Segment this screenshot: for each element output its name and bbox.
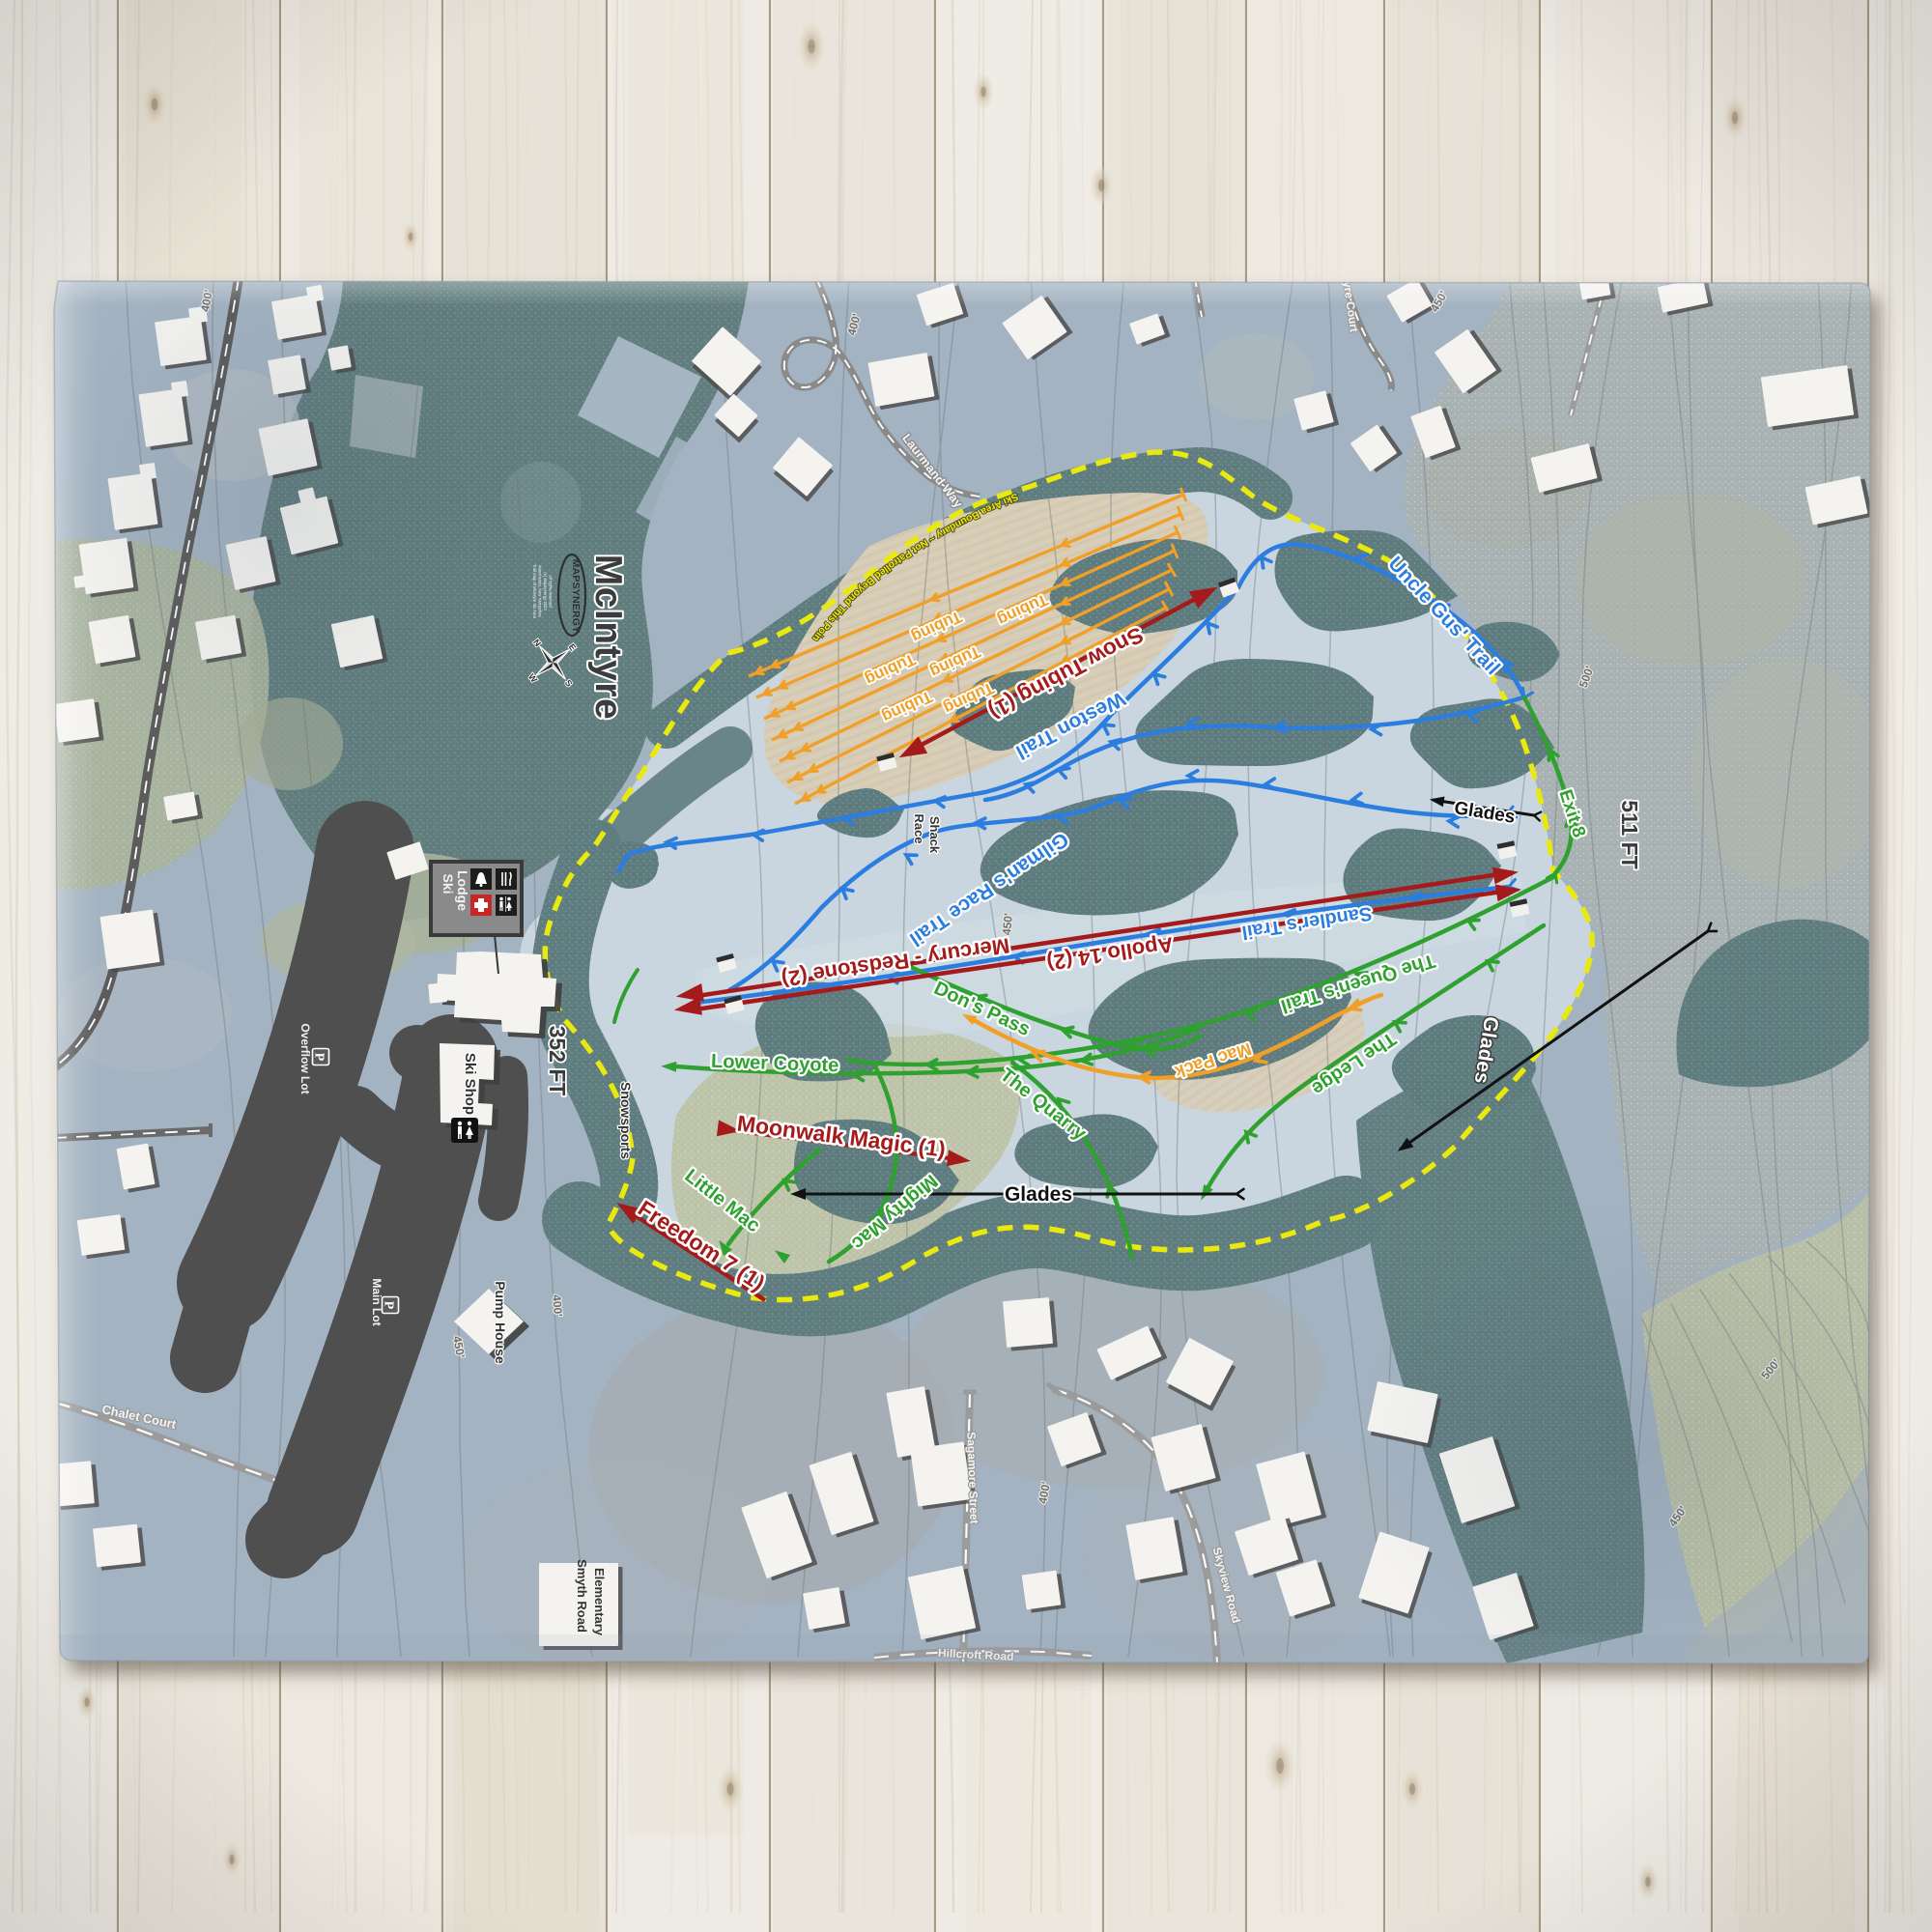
svg-text:Shack: Shack bbox=[927, 816, 942, 854]
svg-text:Elementary: Elementary bbox=[592, 1568, 607, 1636]
svg-text:Smyth Road: Smyth Road bbox=[575, 1559, 589, 1633]
svg-text:Manchester, New Hampshire: Manchester, New Hampshire bbox=[538, 565, 543, 617]
svg-text:Ski: Ski bbox=[440, 873, 456, 894]
svg-text:Race: Race bbox=[912, 813, 926, 843]
svg-text:P: P bbox=[312, 1053, 327, 1062]
svg-text:Ski Shop: Ski Shop bbox=[462, 1053, 478, 1115]
svg-text:Main Lot: Main Lot bbox=[370, 1278, 384, 1325]
svg-text:400': 400' bbox=[550, 1294, 565, 1318]
svg-text:450': 450' bbox=[1000, 913, 1015, 936]
svg-text:Lower Coyote: Lower Coyote bbox=[711, 1051, 839, 1077]
svg-text:(c) Mapsynergy 2023: (c) Mapsynergy 2023 bbox=[543, 572, 548, 611]
svg-text:511 FT: 511 FT bbox=[1617, 800, 1642, 869]
svg-text:McIntyre: McIntyre bbox=[587, 554, 629, 721]
svg-text:352 FT: 352 FT bbox=[545, 1026, 570, 1096]
svg-text:Pump House: Pump House bbox=[493, 1281, 508, 1364]
svg-text:Snowsports: Snowsports bbox=[618, 1082, 634, 1159]
svg-text:Lodge: Lodge bbox=[455, 870, 470, 911]
svg-text:MAPSYNERGY: MAPSYNERGY bbox=[570, 559, 582, 634]
svg-text:Glades: Glades bbox=[1005, 1183, 1072, 1206]
svg-text:All rights reserved: All rights reserved bbox=[549, 575, 554, 608]
svg-text:Overflow Lot: Overflow Lot bbox=[298, 1023, 312, 1094]
